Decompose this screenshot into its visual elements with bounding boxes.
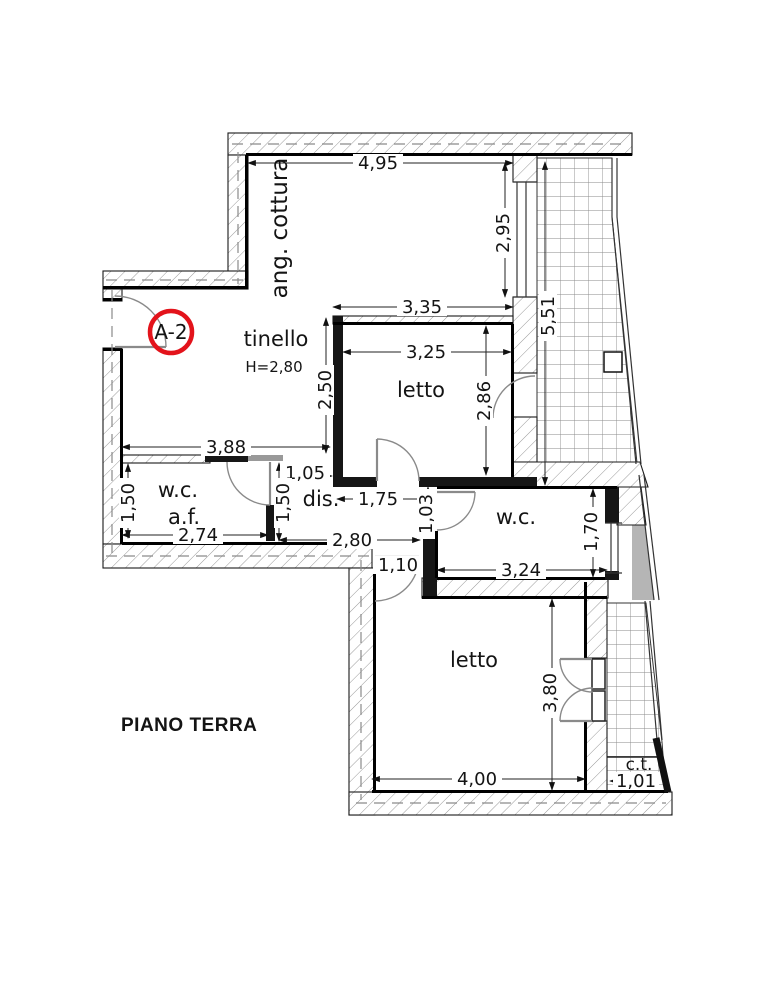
dim-terrace-length: 5,51	[538, 291, 559, 341]
room-label-letto1: letto	[397, 378, 445, 402]
svg-text:1,50: 1,50	[118, 483, 139, 523]
room-height-note: H=2,80	[245, 358, 302, 376]
wall-wc1-top	[122, 455, 210, 463]
dim-cottura-opening: 2,95	[493, 208, 514, 258]
floor-plan-drawing: 4,95 2,95 5,51 3,35 3,25 2,50 2,86 3,88 …	[0, 0, 784, 985]
dim-dis-right-depth: 1,03	[416, 489, 437, 539]
dim-top-width: 4,95	[353, 153, 403, 174]
svg-text:3,25: 3,25	[406, 342, 446, 363]
svg-text:2,95: 2,95	[493, 213, 514, 253]
room-label-letto2: letto	[450, 648, 498, 672]
unit-badge: A-2	[150, 311, 192, 353]
dim-letto1-depth: 2,86	[474, 376, 495, 426]
pocket-door-panel	[248, 455, 283, 461]
wall-letto2-left	[349, 568, 375, 815]
room-label-ct: c.t.	[626, 755, 653, 775]
dim-wc2-depth: 1,70	[581, 507, 602, 557]
dim-dis-left-depth: 1,50	[273, 478, 294, 528]
svg-text:3,80: 3,80	[540, 673, 561, 713]
room-label-wc2: w.c.	[496, 505, 536, 529]
dim-wc2-width: 3,24	[496, 560, 546, 581]
svg-text:4,95: 4,95	[358, 153, 398, 174]
letto2-french-door	[560, 659, 593, 721]
svg-text:3,35: 3,35	[402, 297, 442, 318]
french-door-panel-top	[592, 659, 605, 689]
partition-letto1-bottom-b	[419, 477, 537, 487]
svg-text:2,50: 2,50	[315, 370, 336, 410]
dim-tinello-width: 3,88	[201, 437, 251, 458]
svg-text:2,86: 2,86	[474, 381, 495, 421]
wc2-door	[437, 492, 475, 530]
dim-letto2-depth: 3,80	[540, 668, 561, 718]
wc1-door	[227, 462, 270, 505]
wall-terrace-step	[513, 155, 537, 182]
svg-text:1,10: 1,10	[378, 555, 418, 576]
room-label-cottura: ang. cottura	[267, 158, 293, 299]
svg-text:4,00: 4,00	[457, 769, 497, 790]
dim-passage-width: 1,10	[373, 555, 423, 576]
dim-tinello-depth: 2,50	[315, 365, 336, 415]
svg-text:1,75: 1,75	[358, 489, 398, 510]
room-label-tinello: tinello	[244, 327, 309, 351]
svg-text:1,70: 1,70	[581, 512, 602, 552]
dim-dis-total-width: 2,80	[327, 530, 377, 551]
letto1-door	[377, 439, 419, 481]
partition-letto1-bottom-a	[333, 477, 377, 487]
french-door-panel-bottom	[592, 691, 605, 721]
dim-letto2-width: 4,00	[452, 769, 502, 790]
svg-text:5,51: 5,51	[538, 296, 559, 336]
room-label-dis: dis.	[303, 487, 340, 511]
terrace-post	[604, 352, 622, 372]
svg-text:3,88: 3,88	[206, 437, 246, 458]
dim-letto1-outer-width: 3,35	[397, 297, 447, 318]
wall-terrace-mid	[513, 297, 537, 373]
partition-wc2-right-bottom	[605, 571, 619, 580]
wall-letto2-right-lower	[585, 721, 607, 792]
wall-terrace-low	[513, 417, 537, 462]
svg-text:1,03: 1,03	[416, 494, 437, 534]
svg-text:3,24: 3,24	[501, 560, 541, 581]
svg-text:2,80: 2,80	[332, 530, 372, 551]
room-label-wc1: w.c.	[158, 478, 198, 502]
dim-letto1-width: 3,25	[401, 342, 451, 363]
wall-wc2-letto2	[422, 578, 608, 598]
window-cottura-terrace	[513, 182, 537, 297]
window-wc2	[605, 523, 622, 573]
dim-dis-width: 1,75	[353, 489, 403, 510]
floor-title: PIANO TERRA	[121, 715, 257, 736]
floor-plan-page: 4,95 2,95 5,51 3,35 3,25 2,50 2,86 3,88 …	[0, 0, 784, 985]
dim-wc1-depth: 1,50	[118, 478, 139, 528]
svg-text:1,50: 1,50	[273, 483, 294, 523]
partition-dis-wc2	[423, 531, 437, 598]
unit-badge-label: A-2	[154, 320, 187, 344]
partition-wc2-right-top	[605, 487, 619, 523]
room-label-wc1-af: a.f.	[168, 505, 200, 529]
